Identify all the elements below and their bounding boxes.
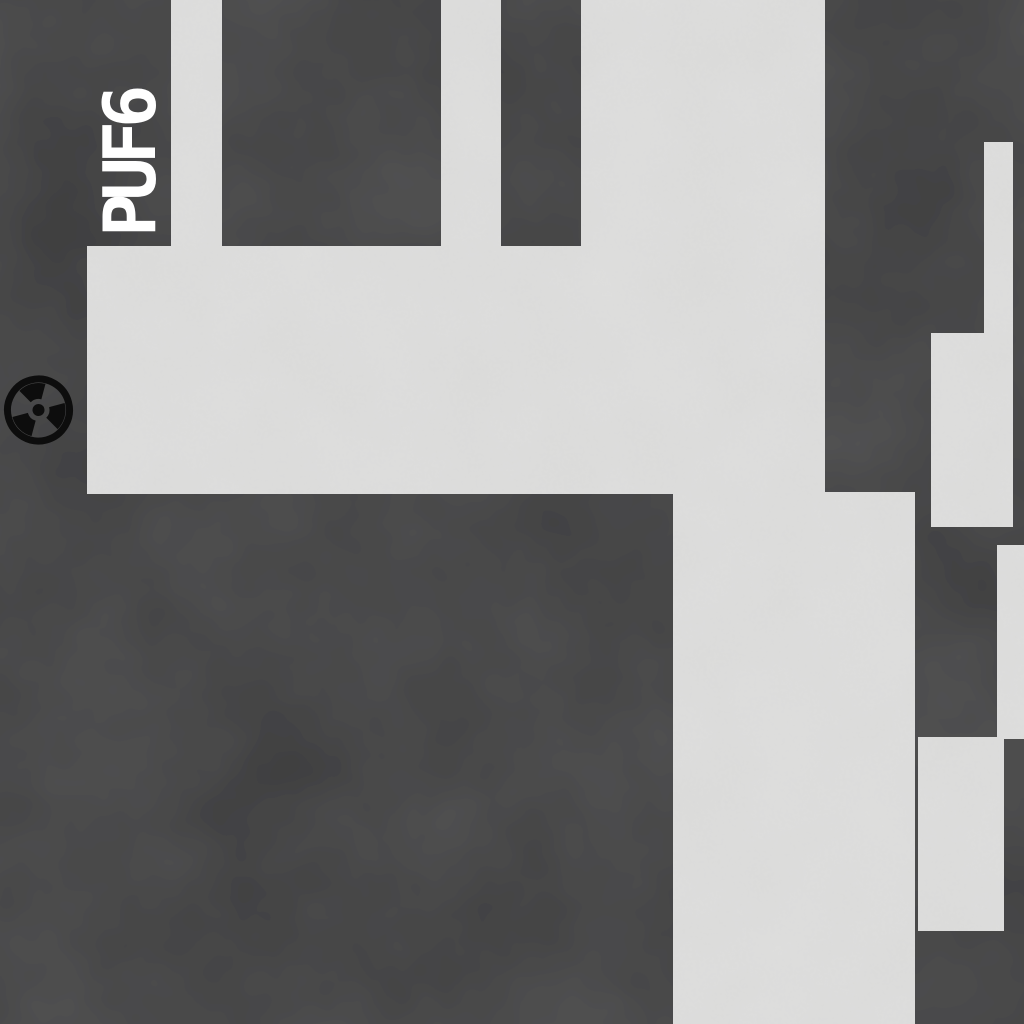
corridor-top-mid [441,0,501,246]
corridor-top-left [171,0,222,246]
level-map: PUF6 [0,0,1024,1024]
room-top [581,0,825,247]
room-right-upper [931,333,1013,527]
corridor-right [984,142,1013,337]
room-label: PUF6 [88,88,172,237]
hall-vertical [673,492,915,1024]
room-right-edge [997,545,1024,739]
game-viewport[interactable]: PUF6 [0,0,1024,1024]
hall-horizontal [87,246,825,494]
room-right-lower [918,737,1004,931]
